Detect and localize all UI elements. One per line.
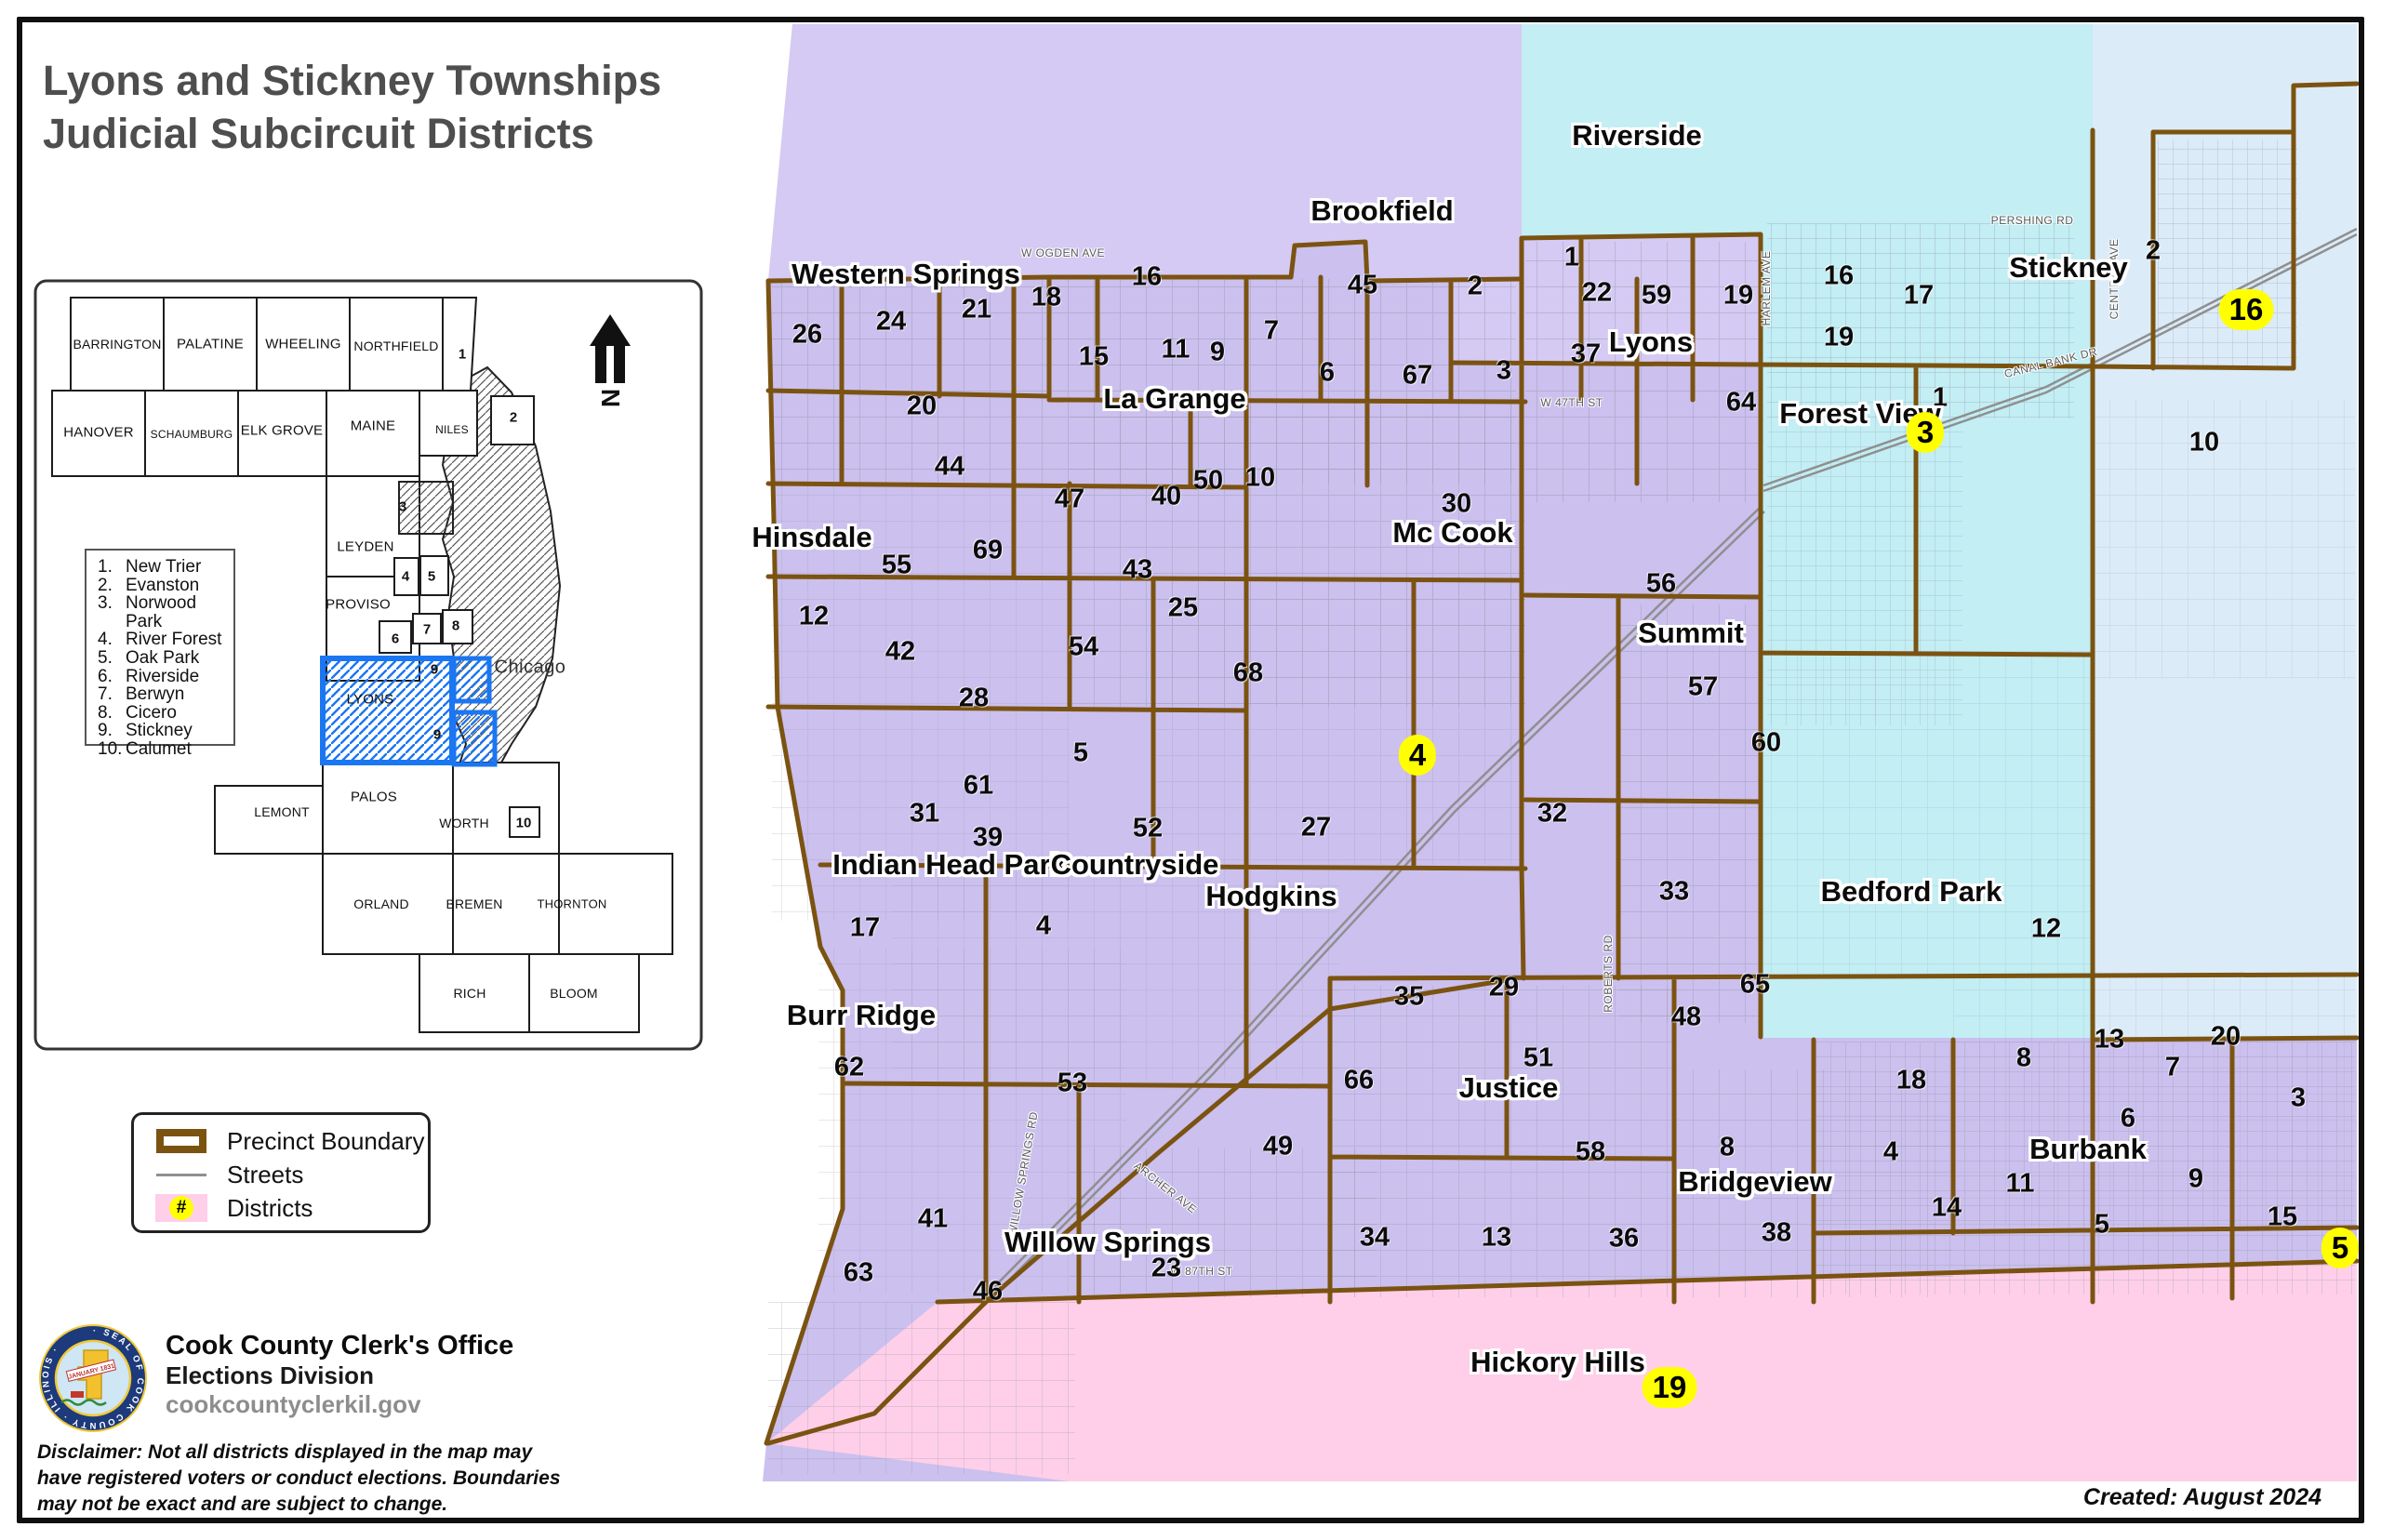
page-title-line1: Lyons and Stickney Townships xyxy=(43,54,661,107)
created-date: Created: August 2024 xyxy=(2083,1484,2321,1511)
district-hash-icon: # xyxy=(169,1196,193,1220)
north-arrow-label: N xyxy=(595,389,625,407)
township-list-item: 1.New Trier xyxy=(98,558,228,577)
inset-lyons-highlight xyxy=(323,658,495,764)
precinct-boundary-swatch xyxy=(154,1129,208,1153)
township-list: 1.New Trier2.Evanston3.Norwood Park4.Riv… xyxy=(85,549,235,746)
legend-row-precinct: Precinct Boundary xyxy=(154,1124,428,1158)
township-list-item: 4.River Forest xyxy=(98,631,228,649)
disclaimer-line: have registered voters or conduct electi… xyxy=(37,1466,561,1492)
streets-swatch xyxy=(154,1174,208,1176)
page-title: Lyons and Stickney Townships Judicial Su… xyxy=(43,54,661,160)
legend-row-streets: Streets xyxy=(154,1158,428,1191)
disclaimer-line: may not be exact and are subject to chan… xyxy=(37,1492,561,1518)
township-list-item: 8.Cicero xyxy=(98,704,228,723)
township-list-item: 7.Berwyn xyxy=(98,685,228,704)
legend-label: Streets xyxy=(227,1161,303,1189)
township-list-item: 3.Norwood Park xyxy=(98,594,228,631)
org-text-block: Cook County Clerk's Office Elections Div… xyxy=(166,1322,513,1434)
page-title-line2: Judicial Subcircuit Districts xyxy=(43,107,661,160)
legend-label: Precinct Boundary xyxy=(227,1127,424,1156)
disclaimer: Disclaimer: Not all districts displayed … xyxy=(37,1440,561,1518)
township-list-item: 10.Calumet xyxy=(98,740,228,759)
township-list-item: 6.Riverside xyxy=(98,668,228,686)
cook-county-seal: JANUARY 1831 · SEAL OF COOK COUNTY · ILL… xyxy=(37,1322,149,1434)
township-list-item: 5.Oak Park xyxy=(98,649,228,668)
seal-boat xyxy=(71,1391,84,1398)
footer: JANUARY 1831 · SEAL OF COOK COUNTY · ILL… xyxy=(37,1322,513,1434)
districts-swatch: # xyxy=(154,1194,208,1222)
township-list-item: 9.Stickney xyxy=(98,722,228,740)
org-name: Cook County Clerk's Office xyxy=(166,1330,513,1361)
legend: Precinct Boundary Streets # Districts xyxy=(131,1112,431,1233)
legend-row-districts: # Districts xyxy=(154,1191,428,1225)
legend-label: Districts xyxy=(227,1194,313,1223)
org-website: cookcountyclerkil.gov xyxy=(166,1390,513,1419)
township-list-item: 2.Evanston xyxy=(98,577,228,595)
disclaimer-line: Disclaimer: Not all districts displayed … xyxy=(37,1440,561,1466)
org-division: Elections Division xyxy=(166,1361,513,1390)
